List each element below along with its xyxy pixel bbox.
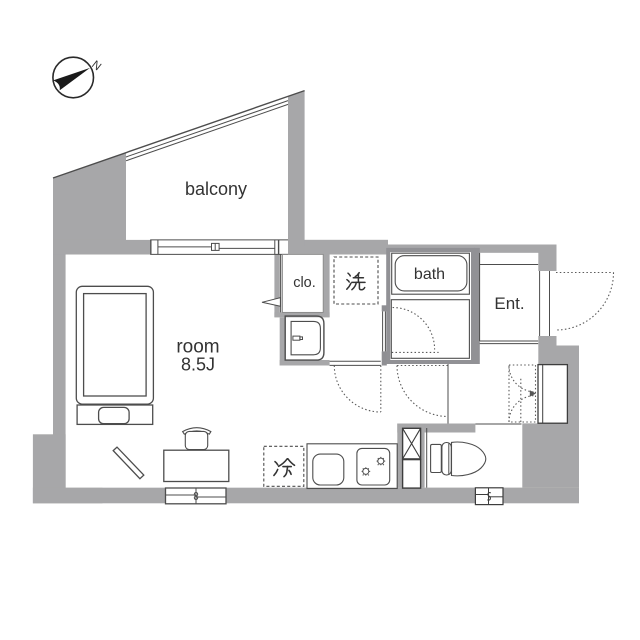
svg-text:Ent.: Ent. xyxy=(494,294,524,313)
svg-text:bath: bath xyxy=(414,266,445,283)
svg-text:balcony: balcony xyxy=(185,179,247,199)
svg-text:8.5J: 8.5J xyxy=(181,355,215,375)
svg-text:clo.: clo. xyxy=(293,275,316,291)
